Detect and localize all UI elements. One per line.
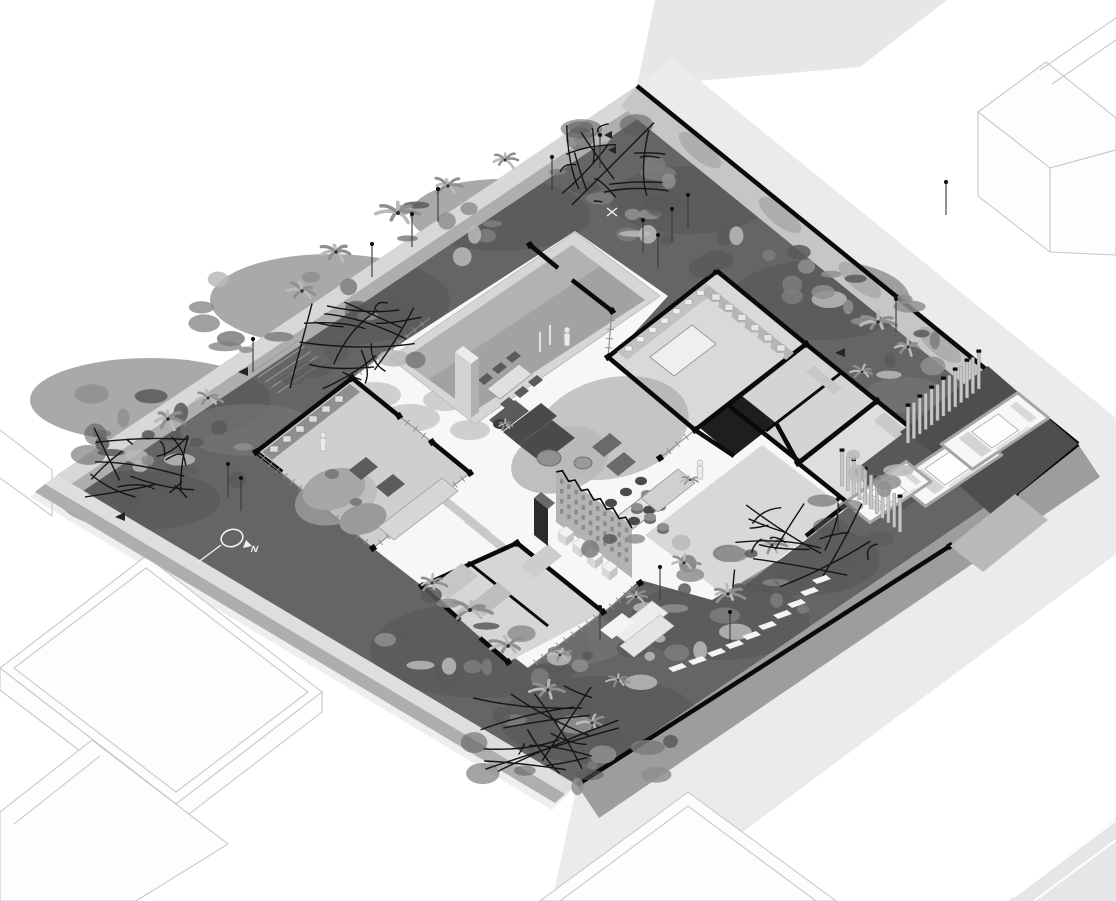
- carport-louver: [898, 498, 901, 532]
- tree-shadow: [571, 701, 594, 712]
- foliage-blob: [483, 220, 502, 227]
- screen-perforation: [560, 489, 563, 494]
- screen-perforation: [610, 517, 613, 522]
- counter-unit: [637, 337, 644, 342]
- screen-perforation: [582, 505, 585, 510]
- palm-trunk: [300, 289, 303, 292]
- carport-louver-cut-mark: [898, 495, 903, 498]
- foliage-blob: [619, 231, 651, 237]
- person-body: [320, 438, 326, 451]
- garage-louver-cut-mark: [917, 395, 922, 398]
- palm-frond: [505, 160, 513, 168]
- light-post-lamp: [598, 133, 602, 137]
- screen-perforation: [603, 521, 606, 526]
- carport-louver: [869, 475, 872, 509]
- garage-louver: [912, 403, 915, 439]
- screen-perforation: [625, 548, 628, 553]
- foliage-blob: [227, 471, 246, 487]
- foliage-blob: [845, 275, 867, 283]
- foliage-blob: [797, 605, 810, 614]
- palm-trunk: [504, 159, 507, 162]
- garage-louver: [960, 367, 963, 403]
- screen-perforation: [574, 520, 577, 525]
- glass-mullion: [605, 347, 612, 348]
- screen-perforation: [567, 514, 570, 519]
- shelf-unit: [725, 304, 733, 310]
- palm-trunk: [431, 582, 434, 585]
- rendering-canvas: N: [0, 0, 1116, 901]
- foliage-blob: [406, 661, 434, 670]
- screen-perforation: [567, 504, 570, 509]
- screen-perforation: [582, 525, 585, 530]
- palm-trunk: [689, 479, 691, 481]
- side-table: [325, 469, 339, 479]
- foliage-blob: [189, 301, 214, 313]
- foliage-blob: [589, 745, 616, 763]
- carport-louver: [893, 493, 896, 527]
- light-post-lamp: [370, 242, 374, 246]
- light-post-lamp: [944, 180, 948, 184]
- counter-unit: [649, 327, 656, 332]
- light-post-lamp: [251, 337, 255, 341]
- column: [455, 346, 479, 418]
- neighbor-building-northeast: [978, 18, 1116, 255]
- screen-perforation: [625, 558, 628, 563]
- garage-louver: [977, 353, 980, 389]
- foliage-blob: [493, 707, 511, 724]
- screen-perforation: [596, 526, 599, 531]
- foliage-blob: [625, 209, 641, 220]
- person-body: [564, 333, 570, 346]
- counter-unit: [685, 300, 692, 305]
- garage-louver-cut-mark: [906, 404, 911, 407]
- screen-perforation: [567, 494, 570, 499]
- palm-trunk: [504, 424, 506, 426]
- screen-perforation: [560, 509, 563, 514]
- screen-perforation: [618, 522, 621, 527]
- foliage-blob: [581, 540, 599, 558]
- foliage-blob: [676, 568, 704, 582]
- lounge-shelf-unit: [309, 416, 317, 422]
- counter-unit: [697, 290, 704, 295]
- palm-trunk: [726, 592, 729, 595]
- garage-louver: [948, 376, 951, 412]
- light-post-lamp: [641, 218, 645, 222]
- foliage-blob: [717, 547, 748, 562]
- foliage-blob: [770, 593, 782, 608]
- foliage-blob: [586, 192, 614, 204]
- foliage-blob: [729, 226, 743, 245]
- light-post-lamp: [686, 193, 690, 197]
- person-body: [697, 466, 703, 479]
- foliage-blob: [164, 453, 195, 465]
- palm-trunk: [334, 250, 338, 254]
- foliage-blob: [374, 633, 396, 647]
- foliage-blob: [913, 330, 929, 338]
- light-post-lamp: [226, 462, 230, 466]
- screen-perforation: [567, 484, 570, 489]
- palm-frond: [398, 213, 408, 223]
- foliage-blob: [117, 409, 129, 428]
- shelf-unit: [764, 335, 772, 341]
- foliage-blob: [239, 346, 253, 353]
- foliage-blob: [843, 300, 853, 315]
- screen-perforation: [574, 510, 577, 515]
- foliage-blob: [672, 535, 691, 551]
- foliage-blob: [211, 420, 227, 434]
- light-post-lamp: [550, 155, 554, 159]
- screen-perforation: [618, 532, 621, 537]
- foliage-blob: [603, 534, 617, 544]
- foliage-blob: [883, 464, 914, 476]
- screen-perforation: [560, 479, 563, 484]
- dining-stool: [635, 477, 647, 485]
- light-post-lamp: [410, 212, 414, 216]
- lounge-shelf-unit: [296, 426, 304, 432]
- foliage-blob: [340, 278, 357, 295]
- palm-trunk: [861, 371, 864, 374]
- garage-louver: [924, 394, 927, 430]
- screen-perforation: [618, 552, 621, 557]
- branch: [594, 201, 602, 202]
- tree-shadow: [807, 495, 837, 507]
- carport-louver: [840, 452, 843, 486]
- screen-perforation: [596, 506, 599, 511]
- light-post-lamp: [894, 297, 898, 301]
- light-post-lamp: [658, 565, 662, 569]
- foliage-blob: [787, 245, 811, 260]
- foliage-blob: [234, 443, 253, 450]
- lounge-shelf-unit: [283, 436, 291, 442]
- tree-shadow: [405, 352, 425, 369]
- shelf-unit: [738, 314, 746, 320]
- side-table: [350, 498, 362, 506]
- palm-trunk: [468, 608, 472, 612]
- foliage-blob: [689, 258, 714, 278]
- garage-louver-cut-mark: [965, 359, 970, 362]
- screen-perforation: [610, 547, 613, 552]
- palm-trunk: [635, 596, 638, 599]
- tree-shadow: [645, 195, 686, 218]
- lounge-shelf-unit: [322, 406, 330, 412]
- foliage-blob: [821, 271, 842, 278]
- shelf-item: [739, 322, 745, 326]
- foliage-blob: [631, 740, 665, 755]
- garage-louver-cut-mark: [976, 350, 981, 353]
- dining-stool: [605, 499, 617, 507]
- foliage-blob: [662, 173, 676, 188]
- carport-louver-cut-mark: [840, 449, 845, 452]
- foliage-blob: [468, 225, 481, 244]
- counter-unit: [625, 346, 632, 351]
- garage-louver: [936, 385, 939, 421]
- screen-perforation: [625, 528, 628, 533]
- glass-mullion: [606, 338, 613, 339]
- garage-louver: [954, 371, 957, 407]
- person-head: [564, 327, 570, 333]
- foliage-blob: [380, 298, 401, 311]
- light-post-lamp: [436, 187, 440, 191]
- foliage-blob: [663, 735, 678, 748]
- foliage-blob: [572, 659, 589, 672]
- shelf-unit: [777, 345, 785, 351]
- screen-perforation: [589, 531, 592, 536]
- barrel-stool-top: [631, 503, 643, 511]
- shelf-item: [726, 312, 732, 316]
- foliage-blob: [460, 202, 477, 215]
- barrel-stool-top: [657, 523, 669, 531]
- shelf-unit: [751, 325, 759, 331]
- garage-louver-cut-mark: [953, 368, 958, 371]
- coffee-table: [574, 457, 592, 469]
- screen-perforation: [582, 515, 585, 520]
- tree-shadow: [514, 765, 536, 775]
- shelf-item: [752, 333, 758, 337]
- tree-shadow: [461, 732, 488, 753]
- foliage-blob: [190, 438, 204, 447]
- screen-perforation: [618, 542, 621, 547]
- foliage-blob: [264, 332, 293, 342]
- counter-unit: [661, 318, 668, 323]
- palm-trunk: [591, 722, 594, 725]
- screen-perforation: [589, 501, 592, 506]
- foliage-blob: [884, 353, 896, 368]
- foliage-blob: [208, 272, 229, 288]
- foliage-blob: [473, 622, 499, 629]
- screen-perforation: [574, 490, 577, 495]
- foliage-blob: [710, 608, 741, 624]
- foliage-blob: [660, 234, 675, 245]
- palm-trunk: [559, 654, 562, 657]
- tree-shadow: [863, 532, 894, 547]
- foliage-blob: [438, 213, 456, 230]
- screen-perforation: [560, 499, 563, 504]
- glass-mullion: [608, 320, 615, 321]
- palm-plant: [494, 154, 518, 168]
- palm-trunk: [771, 544, 774, 547]
- light-post-lamp: [239, 476, 243, 480]
- foliage-blob: [571, 778, 583, 796]
- light-post-lamp: [656, 233, 660, 237]
- lounge-shelf-unit: [335, 396, 343, 402]
- foliage-blob: [762, 250, 775, 261]
- foliage-blob: [626, 534, 645, 544]
- person-head: [697, 460, 703, 466]
- palm-trunk: [683, 562, 686, 565]
- screen-perforation: [589, 521, 592, 526]
- foliage-blob: [847, 450, 861, 460]
- foliage-blob: [442, 658, 456, 675]
- garage-louver: [971, 358, 974, 394]
- foliage-blob: [930, 331, 940, 349]
- foliage-blob: [453, 247, 472, 266]
- garage-louver: [942, 380, 945, 416]
- foliage-blob: [217, 331, 245, 346]
- tree-shadow: [575, 770, 604, 781]
- foliage-blob: [641, 767, 672, 783]
- shelf-unit: [712, 294, 720, 300]
- screen-perforation: [603, 511, 606, 516]
- palm-trunk: [506, 644, 510, 648]
- barrel-stool-top: [644, 513, 656, 521]
- foliage-blob: [302, 272, 320, 283]
- palm-trunk: [396, 211, 400, 215]
- foliage-blob: [583, 651, 593, 660]
- tree-shadow: [742, 577, 780, 594]
- garage-louver: [906, 407, 909, 443]
- light-post-lamp: [670, 207, 674, 211]
- axonometric-scene: N: [0, 0, 1116, 901]
- foliage-blob: [896, 294, 912, 303]
- foliage-blob: [188, 314, 220, 332]
- foliage-blob: [798, 260, 815, 274]
- person-head: [320, 432, 326, 438]
- shelf-item: [778, 353, 784, 357]
- foliage-blob: [721, 220, 733, 228]
- foliage-blob: [848, 464, 867, 482]
- foliage-blob: [678, 583, 691, 596]
- coffee-table: [537, 450, 561, 466]
- light-post-lamp: [836, 497, 840, 501]
- foliage-blob: [782, 289, 803, 304]
- garage-louver-cut-mark: [929, 386, 934, 389]
- foliage-blob: [920, 357, 945, 376]
- tree-shadow: [294, 361, 333, 378]
- light-post-lamp: [598, 605, 602, 609]
- lounge-shelf-unit: [270, 446, 278, 452]
- screen-perforation: [589, 511, 592, 516]
- person-figure: [320, 432, 326, 451]
- palm-trunk: [207, 397, 210, 400]
- palm-trunk: [617, 679, 619, 681]
- palm-trunk: [166, 417, 170, 421]
- counter-unit: [673, 309, 680, 314]
- foliage-blob: [135, 389, 168, 403]
- screen-perforation: [596, 516, 599, 521]
- screen-perforation: [596, 536, 599, 541]
- deck-shadow: [450, 420, 490, 440]
- foliage-blob: [141, 455, 154, 466]
- palm-trunk: [446, 184, 449, 187]
- foliage-blob: [397, 235, 418, 241]
- foliage-blob: [876, 371, 901, 379]
- garage-louver: [965, 362, 968, 398]
- foliage-blob: [872, 474, 901, 490]
- dining-stool: [620, 488, 632, 496]
- person-figure: [564, 327, 570, 346]
- garage-louver-cut-mark: [941, 377, 946, 380]
- foliage-blob: [744, 549, 757, 558]
- garage-louver: [918, 398, 921, 434]
- foliage-blob: [482, 659, 492, 675]
- palm-trunk: [546, 688, 549, 691]
- shelf-item: [713, 302, 719, 306]
- foliage-blob: [463, 660, 481, 673]
- foliage-blob: [664, 644, 689, 661]
- foliage-blob: [75, 384, 109, 404]
- person-figure: [697, 460, 703, 479]
- palm-trunk: [876, 320, 880, 324]
- screen-perforation: [610, 527, 613, 532]
- palm-trunk: [907, 346, 910, 349]
- shelf-item: [765, 343, 771, 347]
- light-post-lamp: [728, 610, 732, 614]
- glass-mullion: [607, 329, 614, 330]
- screen-perforation: [574, 500, 577, 505]
- garage-louver: [930, 389, 933, 425]
- screen-perforation: [582, 495, 585, 500]
- foliage-blob: [811, 285, 835, 299]
